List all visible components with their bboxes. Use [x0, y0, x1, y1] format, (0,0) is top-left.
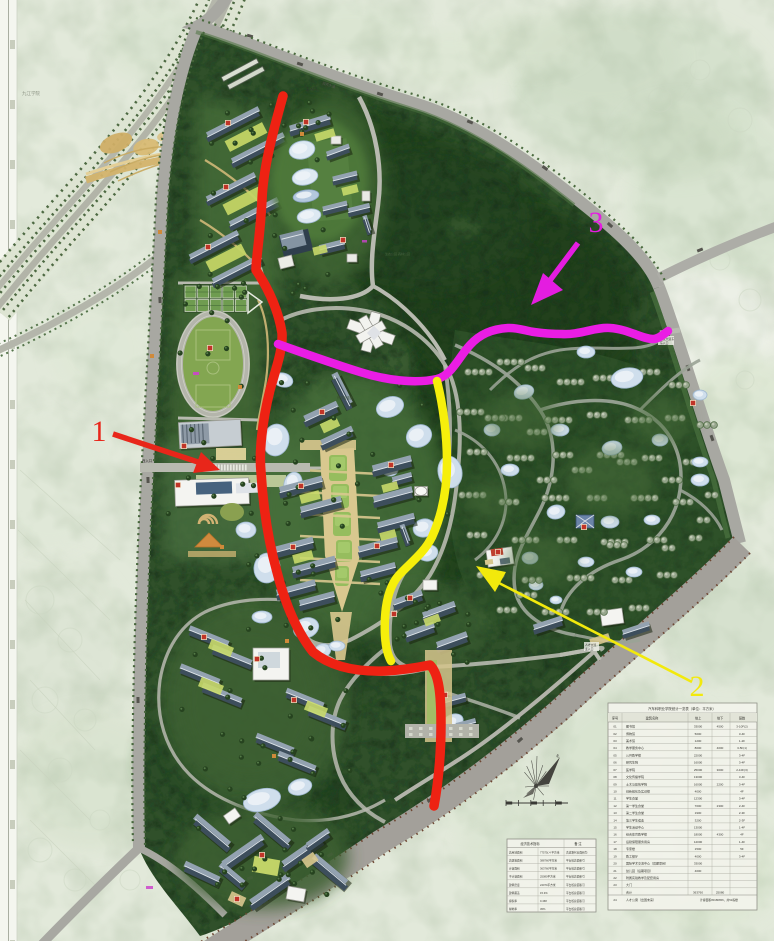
- svg-text:4500: 4500: [717, 725, 724, 729]
- svg-text:序号: 序号: [612, 716, 618, 721]
- svg-text:主入口: 主入口: [306, 86, 317, 91]
- svg-text:图书馆: 图书馆: [626, 724, 635, 729]
- svg-text:4000: 4000: [695, 789, 702, 793]
- svg-text:5000: 5000: [695, 732, 702, 736]
- svg-text:24: 24: [613, 898, 617, 902]
- svg-text:博物馆: 博物馆: [626, 731, 635, 736]
- svg-text:11: 11: [613, 797, 616, 801]
- svg-text:平台核总面积引: 平台核总面积引: [566, 907, 585, 911]
- svg-text:12000: 12000: [694, 840, 703, 844]
- svg-text:附属实验教学及配套用房: 附属实验教学及配套用房: [626, 875, 659, 880]
- svg-text:13000: 13000: [694, 826, 703, 830]
- svg-text:2200: 2200: [717, 782, 724, 786]
- svg-text:12: 12: [613, 804, 617, 808]
- svg-text:01: 01: [613, 725, 617, 729]
- svg-text:建筑名称: 建筑名称: [646, 716, 660, 721]
- svg-text:土木与建筑学院: 土木与建筑学院: [626, 781, 647, 786]
- svg-text:10: 10: [613, 789, 617, 793]
- svg-text:3-4F: 3-4F: [739, 782, 745, 786]
- svg-text:国际学术交流中心（后期项目）: 国际学术交流中心（后期项目）: [626, 861, 668, 866]
- svg-text:07: 07: [613, 768, 617, 772]
- svg-text:06: 06: [613, 761, 617, 765]
- svg-text:生态公园·森林公园: 生态公园·森林公园: [385, 251, 410, 256]
- svg-text:23: 23: [613, 883, 617, 887]
- svg-text:3-4F: 3-4F: [739, 775, 745, 779]
- svg-text:18: 18: [613, 847, 617, 851]
- svg-text:专家楼: 专家楼: [626, 846, 635, 851]
- svg-text:九江学院: 九江学院: [22, 90, 40, 97]
- svg-text:美术馆: 美术馆: [626, 738, 635, 743]
- svg-text:16: 16: [613, 833, 617, 837]
- svg-text:2300: 2300: [717, 804, 724, 808]
- svg-text:第一学生食堂: 第一学生食堂: [626, 803, 644, 808]
- svg-text:1500: 1500: [695, 847, 702, 851]
- svg-text:合计: 合计: [626, 889, 632, 894]
- svg-text:平台核总面积引: 平台核总面积引: [566, 859, 585, 863]
- svg-text:13: 13: [613, 811, 617, 815]
- svg-text:总建筑面积: 总建筑面积: [509, 859, 523, 863]
- svg-text:16000: 16000: [694, 782, 703, 786]
- svg-text:医学院: 医学院: [626, 767, 635, 772]
- svg-text:45%: 45%: [540, 907, 546, 911]
- svg-text:4000: 4000: [717, 746, 724, 750]
- svg-text:学生活动中心: 学生活动中心: [626, 825, 644, 830]
- svg-text:12300: 12300: [694, 797, 703, 801]
- svg-text:平台核总面积引: 平台核总面积引: [566, 899, 585, 903]
- svg-text:3-4F: 3-4F: [739, 753, 745, 757]
- svg-text:8000: 8000: [695, 746, 702, 750]
- svg-text:平台核总面积引: 平台核总面积引: [566, 891, 585, 895]
- svg-text:20: 20: [613, 862, 617, 866]
- svg-text:17: 17: [613, 840, 617, 844]
- svg-text:5F: 5F: [740, 847, 744, 851]
- svg-text:02: 02: [613, 732, 617, 736]
- svg-text:总用地面积: 总用地面积: [509, 851, 523, 855]
- svg-text:2: 2: [690, 670, 705, 703]
- svg-text:公共教学楼: 公共教学楼: [626, 752, 641, 757]
- svg-text:容积率: 容积率: [509, 899, 517, 903]
- svg-text:363760平方米: 363760平方米: [540, 867, 557, 871]
- svg-text:平台核总面积引: 平台核总面积引: [566, 875, 585, 879]
- svg-text:3-10F(2): 3-10F(2): [736, 725, 748, 729]
- svg-text:04: 04: [613, 746, 617, 750]
- svg-text:03: 03: [613, 739, 617, 743]
- svg-text:3000: 3000: [717, 768, 724, 772]
- svg-text:77575(.4 平方米: 77575(.4 平方米: [540, 851, 560, 855]
- svg-text:绿地率: 绿地率: [509, 907, 517, 911]
- svg-text:33000: 33000: [694, 862, 703, 866]
- svg-text:平台核总面积引: 平台核总面积引: [566, 867, 585, 871]
- svg-text:人才公寓（出国未来）: 人才公寓（出国未来）: [626, 897, 656, 902]
- svg-text:1-4F: 1-4F: [739, 840, 745, 844]
- svg-text:文化传播学院: 文化传播学院: [626, 774, 644, 779]
- svg-text:3: 3: [589, 206, 604, 239]
- svg-text:经济技术指标: 经济技术指标: [520, 841, 540, 846]
- svg-text:2-3F: 2-3F: [739, 818, 745, 822]
- svg-text:4F: 4F: [740, 833, 744, 837]
- svg-text:7000: 7000: [695, 804, 702, 808]
- svg-text:18000: 18000: [694, 833, 703, 837]
- svg-text:教工餐厅: 教工餐厅: [626, 853, 638, 858]
- svg-text:2-10F(3): 2-10F(3): [736, 768, 748, 772]
- svg-text:3-4F: 3-4F: [739, 797, 745, 801]
- svg-text:后勤保障服务用房: 后勤保障服务用房: [626, 839, 650, 844]
- svg-text:教学服务中心: 教学服务中心: [626, 745, 644, 750]
- svg-text:东入口: 东入口: [660, 341, 669, 345]
- svg-text:25080平方米: 25080平方米: [540, 875, 556, 879]
- svg-text:24070平方米: 24070平方米: [540, 883, 556, 887]
- svg-text:第二学生食堂: 第二学生食堂: [626, 810, 644, 815]
- svg-text:建筑密度: 建筑密度: [509, 883, 520, 887]
- svg-text:幼儿园（后期项目）: 幼儿园（后期项目）: [626, 868, 653, 873]
- svg-text:388760平方米: 388760平方米: [540, 859, 557, 863]
- svg-text:计容面积: 计容面积: [509, 867, 520, 871]
- svg-text:3200: 3200: [695, 818, 702, 822]
- svg-text:第三学生宿舍: 第三学生宿舍: [626, 817, 644, 822]
- svg-text:19: 19: [613, 854, 617, 858]
- svg-text:备 注: 备 注: [574, 841, 582, 846]
- svg-text:13000: 13000: [694, 775, 703, 779]
- svg-text:1-4F: 1-4F: [739, 826, 745, 830]
- svg-text:3-4F: 3-4F: [739, 761, 745, 765]
- svg-text:1-2F: 1-2F: [739, 739, 745, 743]
- svg-text:汽车科职业学院统计一览表（单位：平方米）: 汽车科职业学院统计一览表（单位：平方米）: [648, 706, 716, 711]
- svg-text:西入口: 西入口: [142, 459, 152, 463]
- svg-text:1200: 1200: [695, 739, 702, 743]
- svg-text:综合体育教学楼: 综合体育教学楼: [626, 832, 647, 837]
- svg-text:地下: 地下: [717, 716, 724, 721]
- svg-text:教学区组团: 教学区组团: [337, 395, 353, 400]
- svg-text:层数: 层数: [739, 716, 746, 721]
- svg-text:15.3%: 15.3%: [540, 891, 548, 895]
- svg-text:创新孵化及实训楼: 创新孵化及实训楼: [626, 788, 650, 793]
- svg-text:3-4F: 3-4F: [739, 732, 745, 736]
- svg-text:1: 1: [92, 415, 107, 448]
- svg-text:33000: 33000: [694, 725, 703, 729]
- svg-text:3-4F: 3-4F: [739, 854, 745, 858]
- svg-text:16000: 16000: [694, 761, 703, 765]
- svg-text:0.468: 0.468: [540, 899, 547, 903]
- svg-text:研究生院: 研究生院: [626, 760, 638, 765]
- svg-text:2-4F: 2-4F: [739, 804, 745, 808]
- svg-text:25080: 25080: [716, 890, 725, 894]
- svg-text:建筑覆盖: 建筑覆盖: [509, 891, 520, 895]
- svg-text:主入口: 主入口: [585, 647, 594, 651]
- svg-text:21: 21: [613, 869, 617, 873]
- svg-text:4000: 4000: [695, 854, 702, 858]
- svg-text:363760: 363760: [693, 890, 703, 894]
- svg-text:25000: 25000: [694, 768, 703, 772]
- svg-text:05: 05: [613, 753, 617, 757]
- svg-text:4000: 4000: [695, 869, 702, 873]
- svg-text:4F: 4F: [740, 789, 744, 793]
- svg-text:学生食堂: 学生食堂: [626, 796, 638, 801]
- svg-text:15: 15: [613, 826, 617, 830]
- svg-text:含道路代征面积为: 含道路代征面积为: [566, 851, 588, 855]
- svg-text:1900: 1900: [695, 811, 702, 815]
- svg-text:14: 14: [613, 818, 617, 822]
- svg-text:2-3F: 2-3F: [739, 811, 745, 815]
- svg-text:平台核总面积引: 平台核总面积引: [566, 883, 585, 887]
- svg-text:计容面积80186656，共51栋楼: 计容面积80186656，共51栋楼: [700, 898, 738, 902]
- svg-text:3-5F(1): 3-5F(1): [737, 746, 747, 750]
- svg-text:大门: 大门: [626, 882, 632, 887]
- svg-text:09: 09: [613, 782, 617, 786]
- svg-text:22000: 22000: [694, 753, 703, 757]
- svg-text:地上: 地上: [695, 716, 702, 721]
- svg-text:4300: 4300: [717, 833, 724, 837]
- svg-text:08: 08: [613, 775, 617, 779]
- svg-text:不计容面积: 不计容面积: [509, 875, 523, 879]
- svg-text:22: 22: [613, 876, 617, 880]
